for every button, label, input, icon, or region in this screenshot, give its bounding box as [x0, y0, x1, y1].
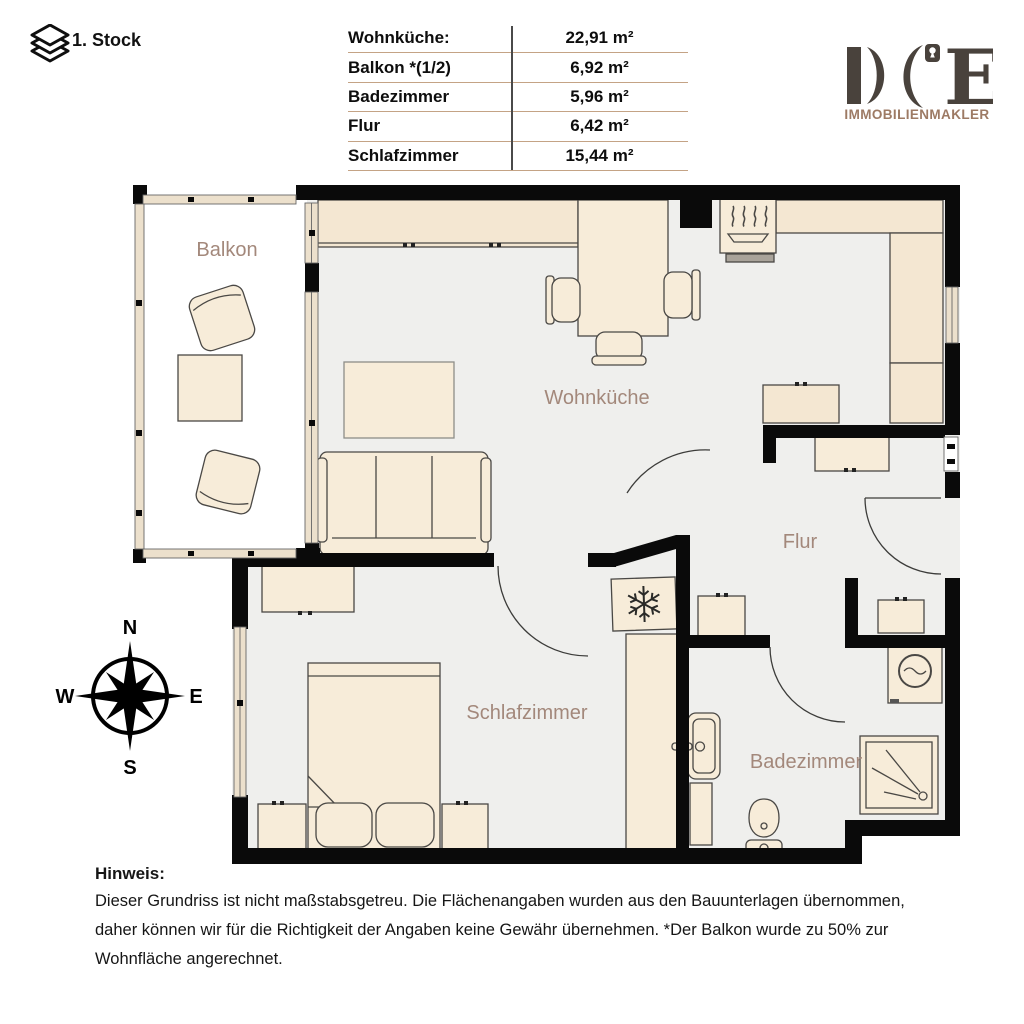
dining-chair-icon [546, 276, 580, 324]
dining-chair-icon [664, 270, 700, 320]
logo-letter-c-icon [904, 45, 924, 108]
area-table: Wohnküche: 22,91 m² Balkon *(1/2) 6,92 m… [348, 24, 688, 171]
room-label-balkon: Balkon [196, 239, 257, 261]
dining-table-icon [578, 200, 668, 336]
table-vertical-divider [511, 26, 513, 170]
washing-machine-icon [888, 645, 942, 703]
room-label-schlafzimmer: Schlafzimmer [466, 702, 587, 724]
nightstand-icon [442, 804, 488, 855]
disclaimer-line: Wohnfläche angerechnet. [95, 945, 957, 974]
hall-cabinet-icon [698, 596, 745, 636]
room-area-cell: 15,44 m² [511, 146, 688, 166]
compass-w: W [56, 686, 75, 708]
wardrobe-icon [626, 634, 678, 856]
keyhole-icon [925, 44, 940, 62]
freezer-icon [611, 577, 677, 631]
room-area-cell: 6,42 m² [511, 116, 688, 136]
sideboard-icon [262, 566, 354, 612]
room-name-cell: Schlafzimmer [348, 146, 511, 166]
balcony-table-icon [178, 355, 242, 421]
table-row: Schlafzimmer 15,44 m² [348, 142, 688, 171]
rug-icon [344, 362, 454, 438]
disclaimer-line: Dieser Grundriss ist nicht maßstabsgetre… [95, 887, 957, 916]
room-name-cell: Flur [348, 116, 511, 136]
floorplan: Balkon Wohnküche Flur Schlafzimmer Badez… [128, 182, 968, 872]
room-name-cell: Balkon *(1/2) [348, 58, 511, 78]
logo-subtitle: IMMOBILIENMAKLER [843, 107, 991, 122]
room-area-cell: 5,96 m² [511, 87, 688, 107]
room-name-cell: Badezimmer [348, 87, 511, 107]
bath-cabinet-icon [690, 783, 712, 845]
logo-letter-e: E [944, 42, 993, 110]
nightstand-icon [258, 804, 306, 855]
room-label-wohnkueche: Wohnküche [544, 387, 649, 409]
bed-icon [308, 663, 440, 855]
table-row: Wohnküche: 22,91 m² [348, 24, 688, 53]
room-name-cell: Wohnküche: [348, 28, 511, 48]
disclaimer-title: Hinweis: [95, 864, 957, 884]
table-row: Balkon *(1/2) 6,92 m² [348, 53, 688, 82]
room-label-badezimmer: Badezimmer [750, 751, 863, 773]
disclaimer: Hinweis: Dieser Grundriss ist nicht maßs… [95, 864, 957, 974]
disclaimer-line: daher können wir für die Richtigkeit der… [95, 916, 957, 945]
table-row: Flur 6,42 m² [348, 112, 688, 141]
shower-icon [860, 736, 938, 814]
hall-cabinet-icon [815, 437, 889, 471]
room-area-cell: 6,92 m² [511, 58, 688, 78]
logo-letter-d-icon [847, 47, 884, 104]
dce-logo: E [843, 42, 993, 110]
sofa-icon [317, 452, 491, 555]
floor-title: 1. Stock [72, 30, 141, 51]
table-row: Badezimmer 5,96 m² [348, 83, 688, 112]
toilet-icon [746, 799, 782, 856]
layers-icon [30, 24, 70, 64]
stove-icon [720, 197, 776, 262]
dining-chair-icon [592, 332, 646, 365]
room-label-flur: Flur [783, 531, 818, 553]
room-area-cell: 22,91 m² [511, 28, 688, 48]
hall-cabinet-icon [878, 600, 924, 633]
